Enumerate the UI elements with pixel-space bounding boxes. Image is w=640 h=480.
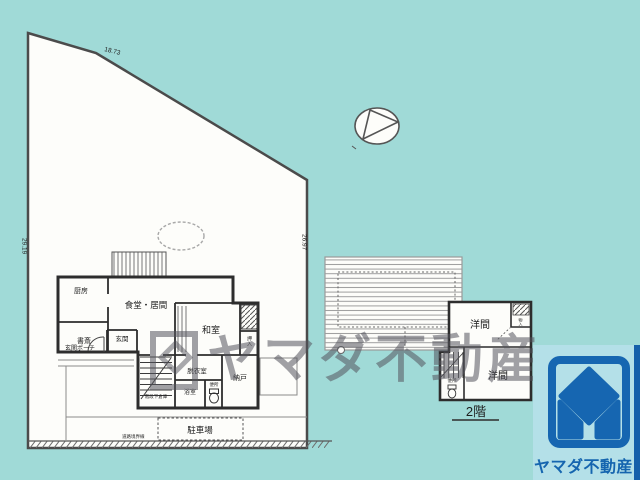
north-compass-icon — [352, 108, 399, 149]
closet-label: 押入 — [246, 335, 252, 346]
bathroom-label: 浴室 — [184, 388, 196, 396]
terrace-outline — [260, 358, 297, 395]
company-logo-text: ヤマダ不動産 — [531, 453, 636, 477]
company-logo-icon — [533, 345, 634, 453]
road-boundary-hatch — [28, 441, 332, 448]
right-edge-navy-strip — [634, 345, 640, 480]
japanese-room-label: 和室 — [202, 324, 220, 335]
entrance-porch-label: 玄関ポーチ — [65, 344, 95, 352]
kitchen-label: 厨房 — [74, 286, 88, 295]
second-floor-closet-label: 物入 — [519, 317, 524, 326]
toilet-label-first-floor: 便所 — [210, 381, 219, 388]
dining-living-label: 食堂・居間 — [125, 300, 168, 310]
floor-plan-listing-image: 18.73 29.19 26.97 — [0, 0, 640, 480]
tatami-edge-hatch — [177, 306, 189, 352]
dimension-left: 29.19 — [21, 238, 28, 255]
western-room-lower-label: 洋間 — [488, 369, 508, 382]
dimension-right: 26.97 — [301, 234, 308, 251]
entrance-label: 玄関 — [116, 334, 129, 343]
under-stairs-storage-label: 階段下倉庫 — [145, 393, 168, 400]
company-logo-panel: ヤマダ不動産 — [533, 345, 634, 480]
dressing-room-label: 脱衣室 — [187, 366, 207, 375]
deck-hatch — [112, 252, 166, 276]
closet-hatch-box — [241, 305, 257, 329]
second-floor-closet-hatch — [513, 304, 529, 315]
roof-balcony-area — [325, 257, 462, 354]
dimension-top: 18.73 — [104, 46, 122, 57]
toilet-label-second-floor: 便所 — [448, 377, 457, 384]
parking-label: 駐車場 — [187, 425, 213, 435]
study-label: 書斎 — [77, 336, 91, 345]
second-floor-plan: 洋間 洋間 便所 物入 2階 — [325, 257, 531, 420]
storeroom-label: 納戸 — [233, 373, 247, 382]
road-boundary-label: 道路境界線 — [122, 433, 145, 440]
western-room-upper-label: 洋間 — [470, 318, 490, 331]
second-floor-title: 2階 — [466, 404, 486, 419]
